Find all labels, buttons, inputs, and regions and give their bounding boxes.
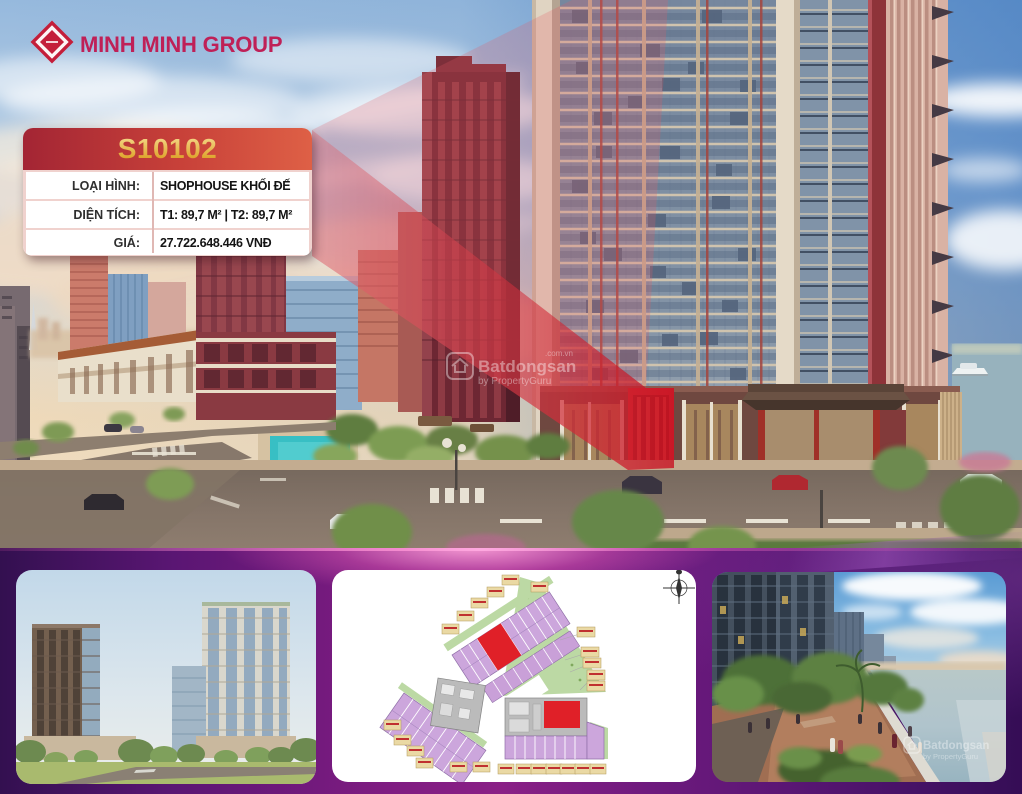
svg-text:MINH MINH GROUP: MINH MINH GROUP — [80, 32, 282, 57]
svg-text:Batdongsan: Batdongsan — [923, 740, 989, 752]
svg-text:.com.vn: .com.vn — [545, 349, 573, 358]
svg-text:Batdongsan: Batdongsan — [478, 357, 576, 376]
svg-text:by PropertyGuru: by PropertyGuru — [478, 376, 551, 387]
svg-text:by PropertyGuru: by PropertyGuru — [923, 752, 978, 761]
